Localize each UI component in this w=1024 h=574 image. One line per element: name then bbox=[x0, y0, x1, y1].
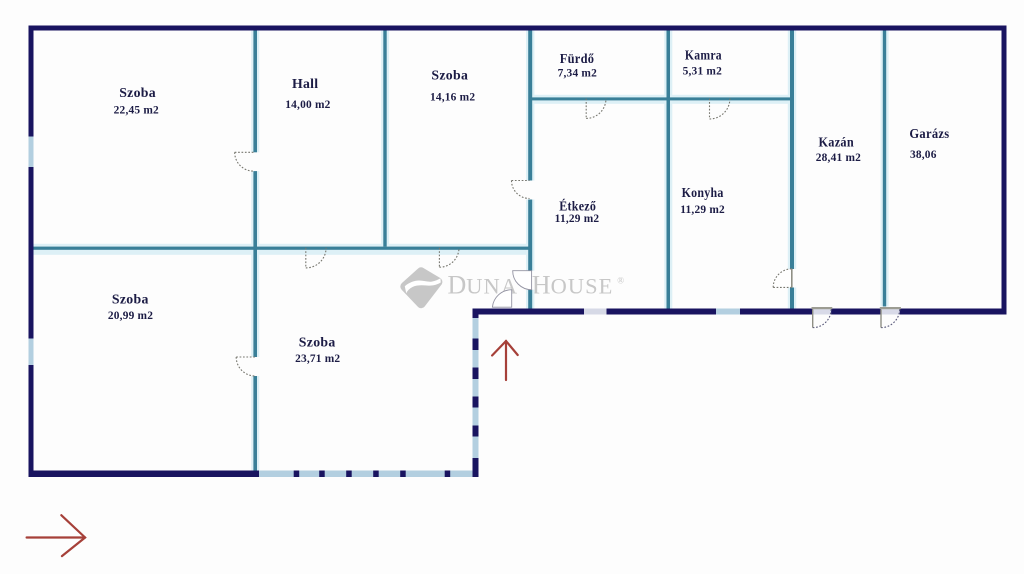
svg-text:5,31 m2: 5,31 m2 bbox=[683, 65, 722, 77]
svg-text:Szoba: Szoba bbox=[112, 292, 149, 307]
svg-text:Szoba: Szoba bbox=[299, 334, 336, 349]
svg-text:Hall: Hall bbox=[292, 76, 319, 91]
svg-text:14,00 m2: 14,00 m2 bbox=[285, 99, 330, 111]
svg-text:Konyha: Konyha bbox=[682, 185, 724, 200]
svg-text:28,41 m2: 28,41 m2 bbox=[816, 152, 861, 164]
svg-text:Kamra: Kamra bbox=[685, 47, 722, 62]
svg-text:Fürdő: Fürdő bbox=[560, 51, 595, 66]
svg-text:Kazán: Kazán bbox=[818, 134, 854, 149]
svg-text:HOUSE: HOUSE bbox=[532, 271, 614, 300]
svg-text:38,06: 38,06 bbox=[910, 149, 937, 161]
svg-text:11,29 m2: 11,29 m2 bbox=[680, 204, 725, 216]
svg-text:Garázs: Garázs bbox=[909, 126, 949, 141]
svg-text:®: ® bbox=[617, 275, 624, 285]
svg-text:Étkező: Étkező bbox=[559, 197, 596, 213]
svg-text:20,99 m2: 20,99 m2 bbox=[108, 310, 153, 322]
svg-text:22,45 m2: 22,45 m2 bbox=[114, 104, 159, 116]
svg-text:7,34 m2: 7,34 m2 bbox=[558, 67, 597, 79]
svg-text:Szoba: Szoba bbox=[431, 68, 468, 83]
svg-text:11,29 m2: 11,29 m2 bbox=[555, 213, 600, 225]
svg-text:Szoba: Szoba bbox=[119, 85, 156, 100]
svg-text:23,71 m2: 23,71 m2 bbox=[295, 353, 340, 365]
svg-text:14,16 m2: 14,16 m2 bbox=[430, 92, 475, 104]
